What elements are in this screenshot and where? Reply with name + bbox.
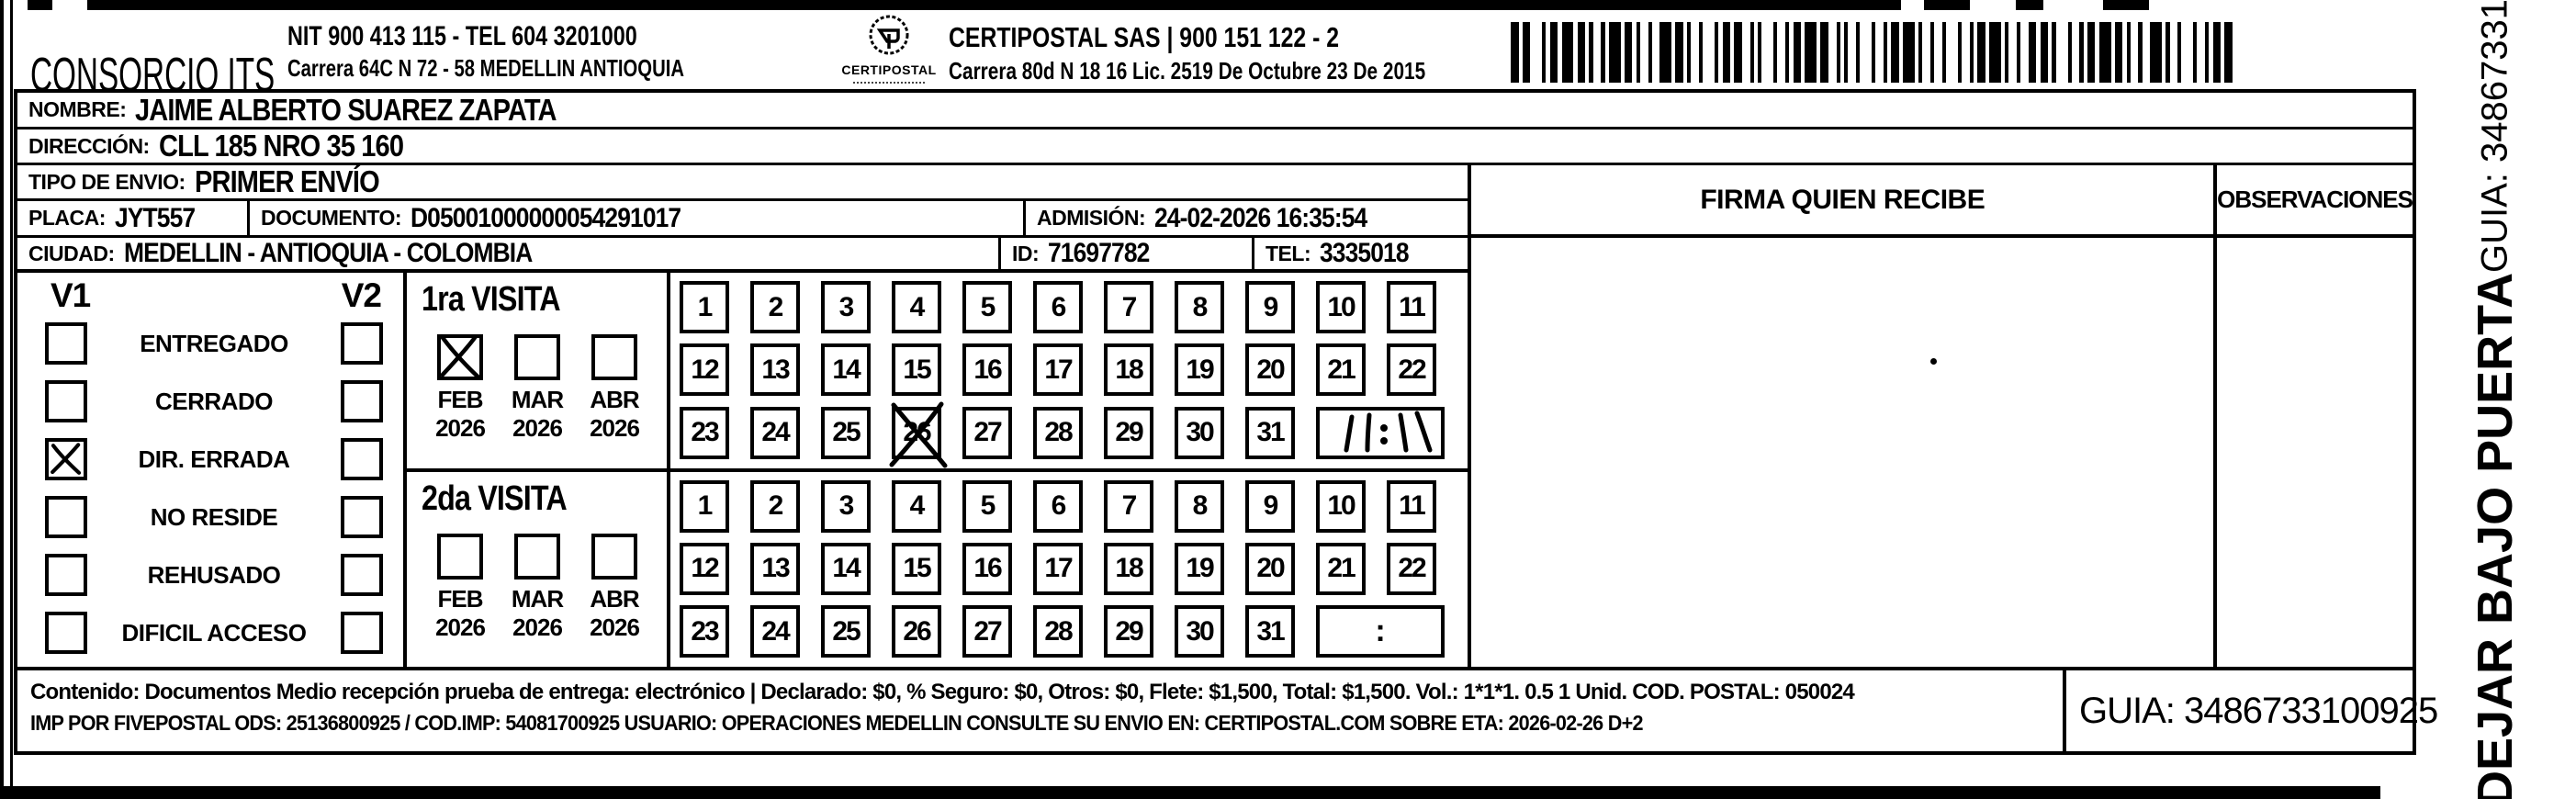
day-cell-4: 4 — [892, 480, 941, 533]
day-cell-22: 22 — [1387, 543, 1436, 595]
observaciones-header: OBSERVACIONES — [2217, 165, 2413, 238]
day-number: 22 — [1398, 354, 1424, 386]
shipment-barcode — [1511, 22, 2233, 83]
bottom-rule — [0, 786, 2380, 799]
v2-checkbox-dir-errada — [341, 438, 383, 480]
barcode-bar — [1734, 22, 1742, 83]
visit-2-months: 2da VISITAFEB2026MAR2026ABR2026 — [407, 472, 670, 668]
day-number: 1 — [698, 292, 712, 323]
visit-1-day-grid: 1234567891011121314151617181920212223242… — [670, 273, 1468, 468]
day-row: 232425262728293031 — [680, 407, 1468, 459]
day-number: 19 — [1186, 553, 1212, 584]
day-number: 10 — [1327, 490, 1354, 522]
day-cell-20: 20 — [1245, 343, 1295, 396]
status-row: DIR. ERRADA — [45, 438, 383, 480]
day-cell-5: 5 — [962, 480, 1012, 533]
observaciones-area — [2217, 238, 2413, 667]
day-cell-10: 10 — [1316, 281, 1366, 333]
logo-tagline — [853, 79, 925, 84]
day-number: 16 — [973, 354, 1000, 386]
day-cell-4: 4 — [892, 281, 941, 333]
row-nombre: NOMBRE: JAIME ALBERTO SUAREZ ZAPATA — [17, 93, 2413, 129]
status-row: ENTREGADO — [45, 322, 383, 365]
shipping-label-scan: CONSORCIO ITS NIT 900 413 115 - TEL 604 … — [0, 0, 2576, 799]
contenido-cell: Contenido: Documentos Medio recepción pr… — [17, 670, 2066, 751]
month-year: 2026 — [435, 613, 485, 642]
barcode-bar — [1659, 22, 1671, 83]
day-number: 30 — [1186, 417, 1212, 448]
barcode-space — [1848, 22, 1856, 83]
day-number: 17 — [1044, 354, 1071, 386]
day-number: 14 — [832, 553, 859, 584]
firma-column: FIRMA QUIEN RECIBE — [1471, 165, 2217, 667]
day-cell-25: 25 — [821, 407, 871, 459]
day-cell-5: 5 — [962, 281, 1012, 333]
barcode-bar — [1989, 22, 2001, 83]
day-number: 4 — [910, 292, 924, 323]
day-number: 17 — [1044, 553, 1071, 584]
side-rotated-text: NO DEJAR BAJO PUERTA GUIA: 3486733100925 — [2419, 84, 2571, 707]
day-number: 9 — [1264, 490, 1277, 522]
day-cell-24: 24 — [750, 605, 800, 658]
day-cell-13: 13 — [750, 343, 800, 396]
day-cell-7: 7 — [1104, 480, 1153, 533]
left-edge-rule-inner — [10, 0, 13, 786]
day-cell-18: 18 — [1104, 343, 1153, 396]
month-year: 2026 — [435, 414, 485, 443]
month-option-abr: ABR2026 — [576, 334, 653, 443]
top-rule — [28, 0, 2167, 10]
day-cell-3: 3 — [821, 480, 871, 533]
carrier-address: Carrera 80d N 18 16 Lic. 2519 De Octubre… — [949, 54, 1425, 88]
barcode-bar — [1977, 22, 1985, 83]
day-cell-26: 26 — [892, 407, 941, 459]
day-cell-16: 16 — [962, 543, 1012, 595]
documento-value: D05001000000054291017 — [411, 203, 681, 234]
day-number: 12 — [691, 354, 717, 386]
day-cell-9: 9 — [1245, 480, 1295, 533]
day-number: 23 — [691, 417, 717, 448]
v2-checkbox-cerrado — [341, 380, 383, 422]
day-number: 16 — [973, 553, 1000, 584]
barcode-space — [1777, 22, 1785, 83]
day-number: 3 — [839, 292, 853, 323]
day-number: 7 — [1122, 490, 1136, 522]
status-label: REHUSADO — [87, 561, 341, 590]
ciudad-value: MEDELLIN - ANTIOQUIA - COLOMBIA — [124, 238, 532, 269]
day-number: 5 — [981, 292, 995, 323]
day-cell-10: 10 — [1316, 480, 1366, 533]
day-cell-18: 18 — [1104, 543, 1153, 595]
placa-value: JYT557 — [115, 203, 195, 234]
day-cell-8: 8 — [1175, 480, 1224, 533]
status-row: DIFICIL ACCESO — [45, 612, 383, 654]
barcode-space — [1828, 22, 1837, 83]
barcode-bar — [2150, 22, 2162, 83]
day-cell-14: 14 — [821, 543, 871, 595]
day-number: 28 — [1044, 616, 1071, 647]
day-cell-13: 13 — [750, 543, 800, 595]
barcode-bar — [2029, 22, 2037, 83]
barcode-bar — [2115, 22, 2123, 83]
barcode-bar — [2213, 22, 2222, 83]
v1-checkbox-dificil-acceso — [45, 612, 87, 654]
month-checkbox-abr — [591, 534, 637, 580]
month-label: FEB — [438, 386, 483, 414]
no-dejar-bajo-puerta-text: NO DEJAR BAJO PUERTA — [2467, 273, 2524, 799]
day-row: 1213141516171819202122 — [680, 543, 1468, 595]
nombre-value: JAIME ALBERTO SUAREZ ZAPATA — [135, 93, 557, 128]
barcode-space — [1761, 22, 1773, 83]
barcode-bar — [1609, 22, 1621, 83]
day-number: 30 — [1186, 616, 1212, 647]
day-number: 21 — [1327, 553, 1354, 584]
barcode-space — [1962, 22, 1970, 83]
time-box — [1316, 407, 1445, 459]
day-cell-22: 22 — [1387, 343, 1436, 396]
handwritten-time-marks — [1323, 411, 1437, 455]
day-number: 15 — [903, 354, 929, 386]
day-cell-12: 12 — [680, 343, 729, 396]
day-cell-17: 17 — [1033, 343, 1083, 396]
middle-left: TIPO DE ENVIO: PRIMER ENVÍO PLACA: JYT55… — [17, 165, 1471, 667]
id-cell: ID: 71697782 — [1001, 238, 1254, 269]
barcode-space — [2170, 22, 2178, 83]
barcode-bar — [1820, 22, 1828, 83]
visita-zone: V1 V2 ENTREGADOCERRADODIR. ERRADANO RESI… — [17, 273, 1468, 667]
barcode-bar — [1625, 22, 1633, 83]
day-cell-30: 30 — [1175, 605, 1224, 658]
day-cell-31: 31 — [1245, 407, 1295, 459]
carrier-name: CERTIPOSTAL SAS | 900 151 122 - 2 — [949, 20, 1425, 54]
contenido-line1: Contenido: Documentos Medio recepción pr… — [30, 677, 2063, 708]
v2-checkbox-no-reside — [341, 496, 383, 538]
month-label: ABR — [590, 585, 638, 613]
day-number: 11 — [1399, 292, 1424, 323]
day-cell-19: 19 — [1175, 543, 1224, 595]
month-checkbox-feb — [437, 534, 483, 580]
barcode-bar — [2041, 22, 2049, 83]
day-number: 25 — [832, 616, 859, 647]
barcode-space — [1530, 22, 1542, 83]
day-number: 14 — [832, 354, 859, 386]
day-number: 27 — [973, 417, 1000, 448]
status-row: NO RESIDE — [45, 496, 383, 538]
day-cell-27: 27 — [962, 407, 1012, 459]
placa-label: PLACA: — [28, 206, 106, 231]
day-cell-29: 29 — [1104, 605, 1153, 658]
v1-checkbox-cerrado — [45, 380, 87, 422]
barcode-bar — [1511, 22, 1519, 83]
barcode-bar — [1903, 22, 1915, 83]
day-number: 18 — [1115, 553, 1142, 584]
day-cell-24: 24 — [750, 407, 800, 459]
tel-label: TEL: — [1266, 242, 1310, 266]
day-number: 11 — [1399, 490, 1424, 522]
admision-label: ADMISIÓN: — [1037, 206, 1145, 231]
day-number: 6 — [1052, 490, 1065, 522]
middle-zone: TIPO DE ENVIO: PRIMER ENVÍO PLACA: JYT55… — [17, 165, 2413, 667]
v2-checkbox-entregado — [341, 322, 383, 365]
barcode-space — [2056, 22, 2068, 83]
day-number: 22 — [1398, 553, 1424, 584]
day-cell-16: 16 — [962, 343, 1012, 396]
day-row: 1213141516171819202122 — [680, 343, 1468, 396]
barcode-space — [1875, 22, 1884, 83]
barcode-bar — [1562, 22, 1574, 83]
day-number: 4 — [910, 490, 924, 522]
barcode-bar — [1805, 22, 1817, 83]
month-checkbox-feb — [437, 334, 483, 380]
day-cell-1: 1 — [680, 480, 729, 533]
barcode-space — [2020, 22, 2029, 83]
barcode-space — [1640, 22, 1648, 83]
day-number: 20 — [1256, 354, 1283, 386]
postal-stamp-icon — [867, 13, 911, 57]
month-label: ABR — [590, 386, 638, 414]
status-row: REHUSADO — [45, 554, 383, 596]
barcode-space — [1703, 22, 1715, 83]
delivery-status-panel: V1 V2 ENTREGADOCERRADODIR. ERRADANO RESI… — [17, 273, 407, 667]
day-cell-11: 11 — [1387, 281, 1436, 333]
barcode-bar — [1891, 22, 1899, 83]
company-nit: NIT 900 413 115 - TEL 604 3201000 — [287, 20, 684, 52]
barcode-bar — [2224, 22, 2233, 83]
day-number: 9 — [1264, 292, 1277, 323]
day-number: 26 — [903, 616, 929, 647]
day-number: 13 — [761, 354, 788, 386]
day-cell-27: 27 — [962, 605, 1012, 658]
month-label: MAR — [512, 386, 563, 414]
row-direccion: DIRECCIÓN: CLL 185 NRO 35 160 — [17, 129, 2413, 165]
v2-checkbox-rehusado — [341, 554, 383, 596]
direccion-value: CLL 185 NRO 35 160 — [159, 129, 403, 163]
day-cell-19: 19 — [1175, 343, 1224, 396]
month-year: 2026 — [590, 414, 639, 443]
v2-header: V2 — [342, 276, 381, 315]
month-year: 2026 — [590, 613, 639, 642]
day-number: 18 — [1115, 354, 1142, 386]
footer-row: Contenido: Documentos Medio recepción pr… — [17, 667, 2413, 751]
day-cell-9: 9 — [1245, 281, 1295, 333]
day-number: 15 — [903, 553, 929, 584]
v2-checkbox-dificil-acceso — [341, 612, 383, 654]
day-cell-7: 7 — [1104, 281, 1153, 333]
barcode-space — [1946, 22, 1958, 83]
day-row: 232425262728293031: — [680, 605, 1468, 658]
barcode-space — [1652, 22, 1660, 83]
month-option-feb: FEB2026 — [422, 534, 499, 642]
v1-checkbox-rehusado — [45, 554, 87, 596]
status-label: ENTREGADO — [87, 330, 341, 358]
day-number: 5 — [981, 490, 995, 522]
day-row: 1234567891011 — [680, 281, 1468, 333]
row-tipo-envio: TIPO DE ENVIO: PRIMER ENVÍO — [17, 165, 1468, 201]
status-row: CERRADO — [45, 380, 383, 422]
carrier-info: CERTIPOSTAL SAS | 900 151 122 - 2 Carrer… — [949, 20, 1425, 88]
barcode-space — [1742, 22, 1750, 83]
status-label: DIFICIL ACCESO — [87, 619, 341, 647]
barcode-bar — [2087, 22, 2096, 83]
status-label: DIR. ERRADA — [87, 445, 341, 474]
month-option-abr: ABR2026 — [576, 534, 653, 642]
day-number: 13 — [761, 553, 788, 584]
certipostal-logo: CERTIPOSTAL — [825, 13, 953, 84]
visit-columns-header: V1 V2 — [45, 276, 383, 315]
direccion-label: DIRECCIÓN: — [28, 134, 150, 159]
documento-cell: DOCUMENTO: D05001000000054291017 — [250, 201, 1026, 235]
handwritten-x-mark — [441, 338, 479, 377]
day-number: 24 — [761, 616, 788, 647]
day-number: 27 — [973, 616, 1000, 647]
day-number: 29 — [1115, 616, 1142, 647]
barcode-space — [1934, 22, 1942, 83]
day-number: 31 — [1256, 616, 1283, 647]
day-number: 23 — [691, 616, 717, 647]
day-cell-15: 15 — [892, 543, 941, 595]
day-number: 24 — [761, 417, 788, 448]
firma-header: FIRMA QUIEN RECIBE — [1471, 165, 2213, 238]
visit-title: 2da VISITA — [422, 479, 630, 519]
month-checkbox-mar — [514, 534, 560, 580]
day-cell-8: 8 — [1175, 281, 1224, 333]
day-cell-23: 23 — [680, 407, 729, 459]
barcode-bar — [1523, 22, 1531, 83]
day-cell-29: 29 — [1104, 407, 1153, 459]
day-cell-21: 21 — [1316, 343, 1366, 396]
barcode-bar — [2099, 22, 2111, 83]
admision-cell: ADMISIÓN: 24-02-2026 16:35:54 — [1026, 201, 1468, 235]
v1-checkbox-dir-errada — [45, 438, 87, 480]
day-number: 8 — [1193, 292, 1207, 323]
barcode-space — [1860, 22, 1872, 83]
month-option-feb: FEB2026 — [422, 334, 499, 443]
day-number: 12 — [691, 553, 717, 584]
company-info: NIT 900 413 115 - TEL 604 3201000 Carrer… — [287, 20, 684, 84]
visits-panel: 1ra VISITAFEB2026MAR2026ABR2026123456789… — [407, 273, 1468, 667]
month-label: MAR — [512, 585, 563, 613]
barcode-bar — [1550, 22, 1558, 83]
side-guia-number: GUIA: 3486733100925 — [2475, 0, 2516, 273]
day-number: 25 — [832, 417, 859, 448]
observaciones-column: OBSERVACIONES — [2217, 165, 2413, 667]
company-address: Carrera 64C N 72 - 58 MEDELLIN ANTIOQUIA — [287, 52, 684, 84]
visit-2: 2da VISITAFEB2026MAR2026ABR2026123456789… — [407, 472, 1468, 668]
tel-value: 3335018 — [1320, 238, 1409, 269]
day-number: 19 — [1186, 354, 1212, 386]
status-rows: ENTREGADOCERRADODIR. ERRADANO RESIDEREHU… — [45, 315, 383, 656]
ciudad-cell: CIUDAD: MEDELLIN - ANTIOQUIA - COLOMBIA — [17, 238, 1001, 269]
day-number: 2 — [769, 292, 782, 323]
day-cell-30: 30 — [1175, 407, 1224, 459]
v1-checkbox-no-reside — [45, 496, 87, 538]
barcode-space — [1691, 22, 1699, 83]
day-number: 21 — [1327, 354, 1354, 386]
day-row: 1234567891011 — [680, 480, 1468, 533]
label-table: NOMBRE: JAIME ALBERTO SUAREZ ZAPATA DIRE… — [14, 89, 2416, 755]
day-number: 28 — [1044, 417, 1071, 448]
day-cell-26: 26 — [892, 605, 941, 658]
day-cell-1: 1 — [680, 281, 729, 333]
ciudad-label: CIUDAD: — [28, 242, 115, 266]
month-checkbox-abr — [591, 334, 637, 380]
barcode-bar — [1578, 22, 1586, 83]
day-cell-14: 14 — [821, 343, 871, 396]
day-number: 20 — [1256, 553, 1283, 584]
documento-label: DOCUMENTO: — [261, 206, 401, 231]
day-cell-25: 25 — [821, 605, 871, 658]
month-options: FEB2026MAR2026ABR2026 — [422, 334, 667, 443]
day-cell-2: 2 — [750, 281, 800, 333]
logo-caption: CERTIPOSTAL — [825, 62, 953, 77]
tipo-envio-label: TIPO DE ENVIO: — [28, 170, 186, 195]
row-ciudad: CIUDAD: MEDELLIN - ANTIOQUIA - COLOMBIA … — [17, 238, 1468, 273]
day-cell-12: 12 — [680, 543, 729, 595]
tipo-envio-value: PRIMER ENVÍO — [195, 164, 379, 199]
day-cell-31: 31 — [1245, 605, 1295, 658]
day-number: 1 — [698, 490, 712, 522]
day-number: 31 — [1256, 417, 1283, 448]
day-cell-3: 3 — [821, 281, 871, 333]
day-number: 3 — [839, 490, 853, 522]
visit-2-day-grid: 1234567891011121314151617181920212223242… — [670, 472, 1468, 668]
day-cell-6: 6 — [1033, 281, 1083, 333]
day-cell-20: 20 — [1245, 543, 1295, 595]
day-cell-17: 17 — [1033, 543, 1083, 595]
barcode-space — [2008, 22, 2017, 83]
day-cell-6: 6 — [1033, 480, 1083, 533]
barcode-space — [2131, 22, 2139, 83]
barcode-space — [2072, 22, 2080, 83]
visit-1-months: 1ra VISITAFEB2026MAR2026ABR2026 — [407, 273, 670, 468]
day-number: 10 — [1327, 292, 1354, 323]
admision-value: 24-02-2026 16:35:54 — [1154, 203, 1367, 234]
day-cell-21: 21 — [1316, 543, 1366, 595]
day-cell-23: 23 — [680, 605, 729, 658]
guia-number-cell: GUIA: 3486733100925 — [2066, 670, 2413, 751]
barcode-space — [2197, 22, 2205, 83]
day-number: 29 — [1115, 417, 1142, 448]
barcode-bar — [1794, 22, 1802, 83]
status-label: NO RESIDE — [87, 503, 341, 532]
v1-header: V1 — [51, 276, 90, 315]
month-options: FEB2026MAR2026ABR2026 — [422, 534, 667, 642]
id-value: 71697782 — [1048, 238, 1149, 269]
nombre-label: NOMBRE: — [28, 97, 126, 122]
barcode-space — [2143, 22, 2151, 83]
barcode-space — [1922, 22, 1930, 83]
barcode-bar — [1723, 22, 1731, 83]
v1-checkbox-entregado — [45, 322, 87, 365]
day-cell-2: 2 — [750, 480, 800, 533]
month-option-mar: MAR2026 — [499, 334, 576, 443]
day-cell-28: 28 — [1033, 605, 1083, 658]
row-placa: PLACA: JYT557 DOCUMENTO: D05001000000054… — [17, 201, 1468, 238]
month-checkbox-mar — [514, 334, 560, 380]
crossed-day-mark — [888, 402, 949, 468]
day-number: 7 — [1122, 292, 1136, 323]
month-option-mar: MAR2026 — [499, 534, 576, 642]
barcode-space — [2181, 22, 2193, 83]
scan-dot — [1930, 358, 1937, 365]
day-cell-28: 28 — [1033, 407, 1083, 459]
day-number: 2 — [769, 490, 782, 522]
tel-cell: TEL: 3335018 — [1254, 238, 1468, 269]
contenido-line2: IMP POR FIVEPOSTAL ODS: 25136800925 / CO… — [30, 708, 1940, 737]
month-year: 2026 — [512, 414, 562, 443]
month-label: FEB — [438, 585, 483, 613]
day-number: 6 — [1052, 292, 1065, 323]
